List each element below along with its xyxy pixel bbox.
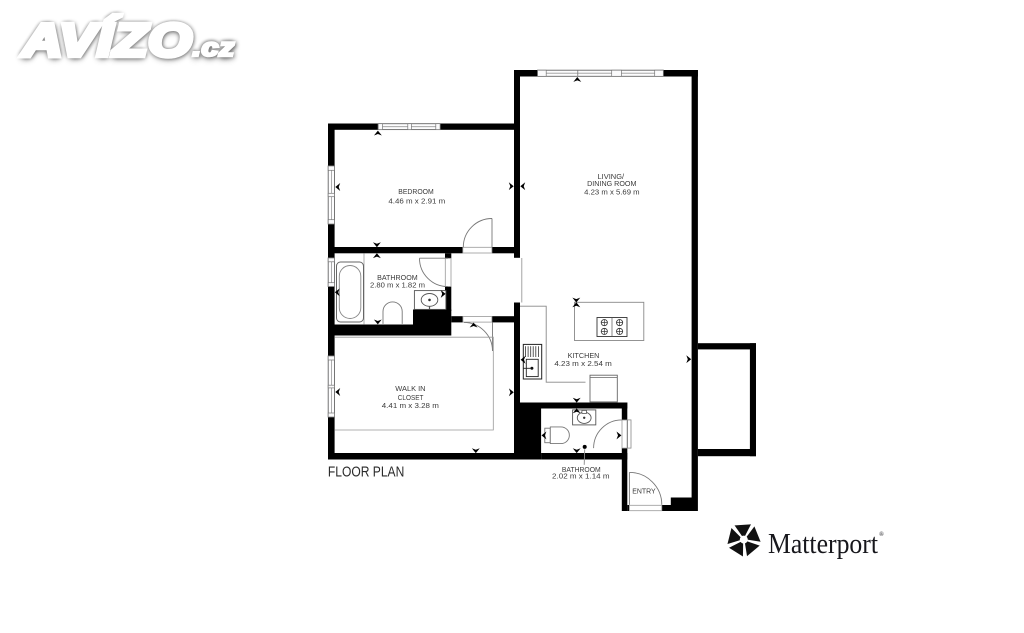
svg-text:®: ®	[879, 531, 884, 538]
svg-text:ENTRY: ENTRY	[632, 489, 656, 496]
svg-text:2.80 m x 1.82 m: 2.80 m x 1.82 m	[370, 283, 425, 290]
svg-text:BEDROOM: BEDROOM	[398, 189, 434, 196]
svg-text:LIVING/: LIVING/	[598, 174, 625, 181]
svg-text:BATHROOM: BATHROOM	[377, 275, 418, 282]
svg-text:4.41 m x 3.28 m: 4.41 m x 3.28 m	[382, 403, 439, 410]
svg-text:4.23 m x 5.69 m: 4.23 m x 5.69 m	[584, 189, 640, 196]
svg-text:4.23 m x 2.54 m: 4.23 m x 2.54 m	[554, 361, 612, 368]
svg-text:2.02 m x 1.14 m: 2.02 m x 1.14 m	[552, 474, 610, 481]
svg-text:Matterport: Matterport	[768, 528, 878, 560]
svg-text:4.46 m x 2.91 m: 4.46 m x 2.91 m	[388, 198, 445, 205]
svg-text:KITCHEN: KITCHEN	[568, 353, 600, 360]
svg-text:FLOOR PLAN: FLOOR PLAN	[328, 464, 404, 480]
svg-text:DINING ROOM: DINING ROOM	[587, 181, 636, 188]
svg-text:CLOSET: CLOSET	[398, 395, 424, 402]
svg-text:WALK IN: WALK IN	[395, 386, 425, 393]
